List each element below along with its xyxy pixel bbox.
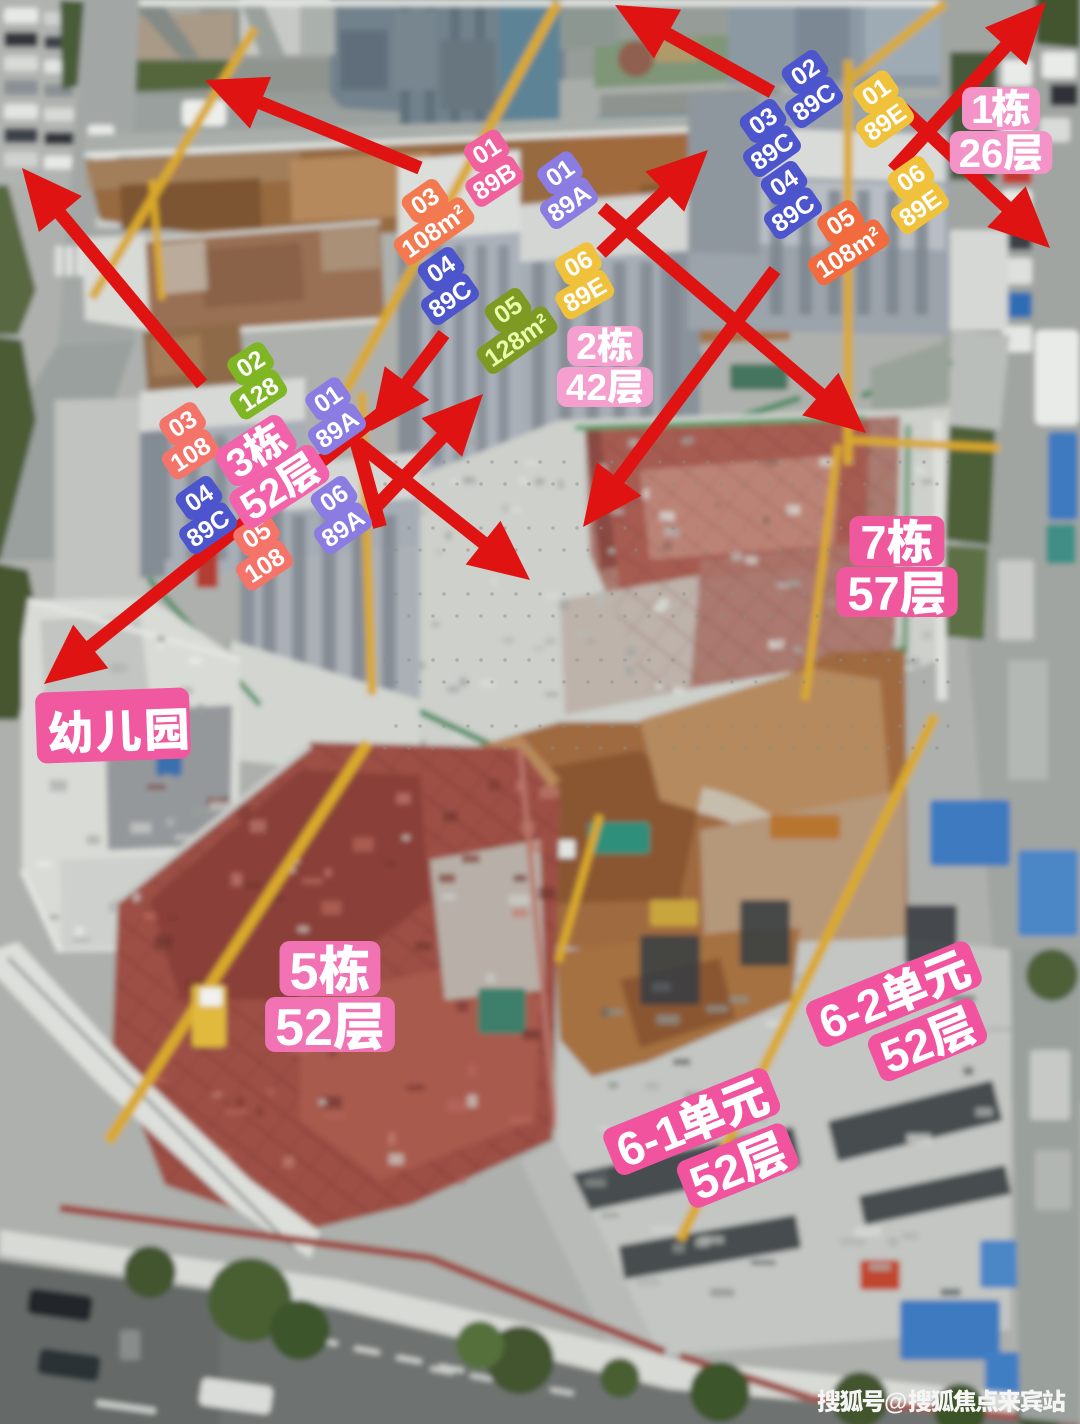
svg-text:26: 26 (959, 132, 1004, 176)
svg-text:7: 7 (860, 516, 886, 569)
svg-text:@: @ (884, 1389, 907, 1416)
svg-text:2: 2 (576, 326, 597, 367)
svg-text:5: 5 (290, 943, 319, 1001)
svg-text:42: 42 (566, 367, 607, 408)
svg-text:52: 52 (275, 999, 333, 1057)
svg-text:1: 1 (971, 88, 993, 132)
svg-text:57: 57 (847, 567, 899, 620)
